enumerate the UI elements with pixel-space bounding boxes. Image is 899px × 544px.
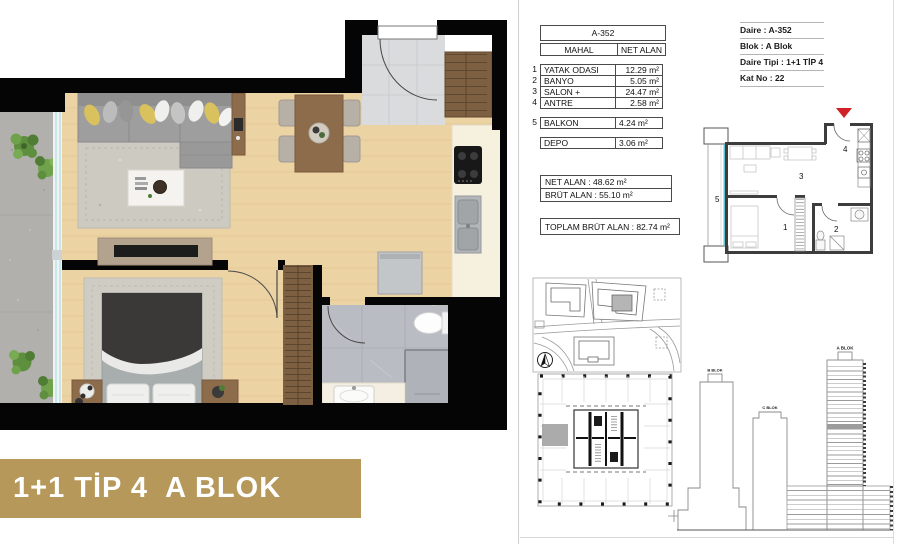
project-building-highlight [612,295,632,311]
coffee-table [128,170,184,206]
panel-divider [518,0,519,544]
col-net-alan: NET ALAN [617,44,665,55]
site-plan-map [532,277,682,373]
podium-floor-lines [787,486,890,530]
room-num-salon: 3 [799,172,804,181]
brochure-page: 1+1 TİP 4 A BLOK A-352 MAHAL NET ALAN 1 … [0,0,899,544]
entry-wardrobe [445,52,492,117]
kitchen-counter [452,125,503,303]
toplam-brut-alan: TOPLAM BRÜT ALAN : 82.74 m² [540,218,680,235]
a-blok-floor-numbers [863,363,866,486]
building-core [574,410,638,468]
info-kat-no: Kat No : 22 [740,71,824,87]
type-label: 1+1 TİP 4 A BLOK [0,459,361,518]
entry-hall-tile [362,35,445,125]
podium-floor-numbers [890,486,893,530]
table-column-headers: MAHAL NET ALAN [540,43,666,56]
schematic-unit-plan: 5 3 4 1 2 [700,103,880,263]
unit-info-panel: Daire : A-352 Blok : A Blok Daire Tipi :… [740,22,824,87]
balkon-row: 5 BALKON 4.24 m² [524,118,694,129]
unit-number-header: A-352 [540,25,666,41]
a-blok-label: A BLOK [836,346,854,351]
north-compass-icon [538,353,553,368]
bed [102,293,202,408]
info-daire-tipi: Daire Tipi : 1+1 TİP 4 [740,55,824,71]
kat-22-highlight [827,424,863,429]
tv-unit [98,238,212,265]
balcony-cap-bottom [704,246,728,262]
area-summary: NET ALAN : 48.62 m² BRÜT ALAN : 55.10 m² [540,175,672,202]
balcony-cap-top [704,128,728,144]
room-num-yatak: 1 [783,223,788,232]
col-mahal: MAHAL [541,44,617,55]
entrance-marker-icon [836,108,852,118]
table-row: 4 ANTRE 2.58 m² [524,97,694,109]
bedroom-wardrobe [283,265,313,405]
info-blok: Blok : A Blok [740,39,824,55]
side-table [232,93,245,155]
cooktop [454,146,482,184]
brut-alan: BRÜT ALAN : 55.10 m² [540,188,672,202]
c-blok-label: C BLOK [762,405,777,410]
room-rows: 1 YATAK ODASI 12.29 m² 2 BANYO 5.05 m² 3… [524,65,694,109]
info-daire: Daire : A-352 [740,23,824,39]
floor-key-plan [530,368,682,528]
room-num-banyo: 2 [834,225,839,234]
bathroom [322,300,449,408]
shower [405,350,448,408]
type-label-bar: 1+1 TİP 4 A BLOK [0,459,361,518]
fridge [378,252,422,294]
room-num-antre: 4 [843,145,848,154]
schematic-bath-fixtures [816,208,868,250]
schematic-wardrobe [795,198,805,251]
b-blok-label: B BLOK [707,368,722,373]
depo-row: DEPO 3.06 m² [524,138,694,149]
unit-location-highlight [542,424,568,446]
schematic-kitchen [857,129,870,187]
room-num-balkon: 5 [715,195,720,204]
net-alan: NET ALAN : 48.62 m² [540,175,672,189]
toilet [414,313,444,334]
rendered-floor-plan [0,0,518,458]
b-blok-outline [678,382,746,530]
